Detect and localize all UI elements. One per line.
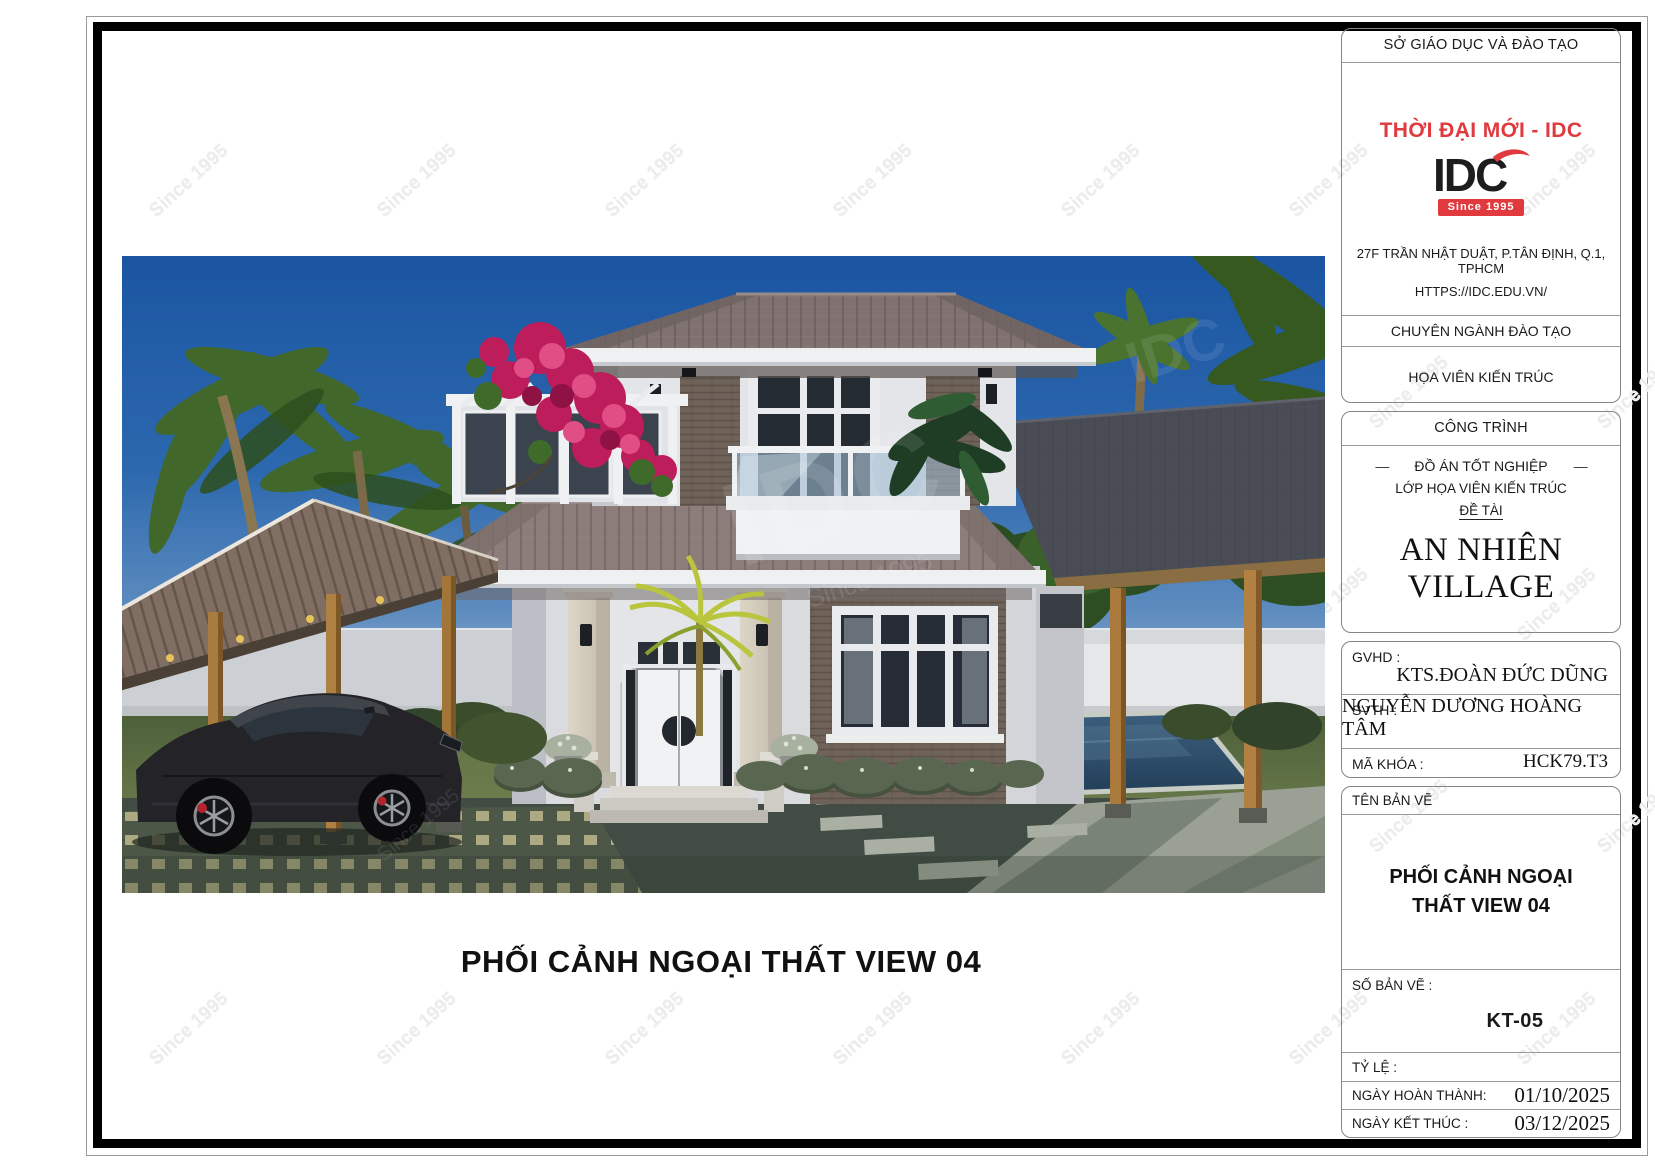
project-line3: ĐỀ TÀI	[1342, 503, 1620, 518]
ngay-hoan-thanh-row: NGÀY HOÀN THÀNH: 01/10/2025	[1342, 1082, 1620, 1110]
ngay-ket-thuc-row: NGÀY KẾT THÚC : 03/12/2025	[1342, 1110, 1620, 1137]
ngay-ket-thuc-value: 03/12/2025	[1514, 1111, 1610, 1136]
ty-le-label: TỶ LỆ :	[1352, 1060, 1397, 1075]
exterior-render: IDC Since 1995 IDC Since 1995	[122, 256, 1325, 893]
gvhd-row: GVHD : KTS.ĐOÀN ĐỨC DŨNG	[1342, 642, 1620, 695]
project-line2: LỚP HỌA VIÊN KIẾN TRÚC	[1342, 481, 1620, 496]
org-website: HTTPS://IDC.EDU.VN/	[1342, 284, 1620, 299]
project-line1-row: — ĐỒ ÁN TỐT NGHIỆP —	[1342, 458, 1620, 474]
ngay-hoan-thanh-value: 01/10/2025	[1514, 1083, 1610, 1108]
ngay-ket-thuc-label: NGÀY KẾT THÚC :	[1352, 1116, 1468, 1131]
title-block-people-section: GVHD : KTS.ĐOÀN ĐỨC DŨNG SVTH : NGUYỄN D…	[1341, 641, 1621, 778]
title-block: SỞ GIÁO DỤC VÀ ĐÀO TẠO THỜI ĐẠI MỚI - ID…	[1341, 28, 1621, 1138]
ngay-hoan-thanh-label: NGÀY HOÀN THÀNH:	[1352, 1088, 1487, 1103]
project-name: AN NHIÊN VILLAGE	[1342, 532, 1620, 606]
title-block-org-section: SỞ GIÁO DỤC VÀ ĐÀO TẠO THỜI ĐẠI MỚI - ID…	[1341, 28, 1621, 403]
title-block-sheet-section: TÊN BẢN VẼ PHỐI CẢNH NGOẠI THẤT VIEW 04 …	[1341, 786, 1621, 1138]
so-ban-ve-value: KT-05	[1376, 1010, 1621, 1033]
project-header: CÔNG TRÌNH	[1342, 412, 1620, 446]
drawing-title-line1: PHỐI CẢNH NGOẠI	[1389, 863, 1572, 892]
major-value: HỌA VIÊN KIẾN TRÚC	[1342, 369, 1620, 385]
dash-right: —	[1574, 458, 1587, 474]
major-header: CHUYÊN NGÀNH ĐÀO TẠO	[1342, 315, 1620, 347]
so-ban-ve-row: SỐ BẢN VẼ : KT-05	[1342, 970, 1620, 1054]
makhoa-value: HCK79.T3	[1523, 751, 1608, 773]
drawing-title-area: PHỐI CẢNH NGOẠI THẤT VIEW 04	[1342, 815, 1620, 970]
idc-tagline: THỜI ĐẠI MỚI - IDC	[1342, 119, 1620, 143]
org-address: 27F TRẦN NHẬT DUẬT, P.TÂN ĐỊNH, Q.1, TPH…	[1342, 246, 1620, 276]
gvhd-value: KTS.ĐOÀN ĐỨC DŨNG	[1396, 664, 1608, 687]
org-header: SỞ GIÁO DỤC VÀ ĐÀO TẠO	[1342, 29, 1620, 63]
svth-row: SVTH : NGUYỄN DƯƠNG HOÀNG TÂM	[1342, 695, 1620, 748]
title-block-project-section: CÔNG TRÌNH — ĐỒ ÁN TỐT NGHIỆP — LỚP HỌA …	[1341, 411, 1621, 633]
drawing-caption: PHỐI CẢNH NGOẠI THẤT VIEW 04	[101, 944, 1341, 980]
svth-value: NGUYỄN DƯƠNG HOÀNG TÂM	[1342, 695, 1608, 741]
makhoa-row: MÃ KHÓA : HCK79.T3	[1342, 749, 1620, 777]
drawing-sheet: Since 1995Since 1995Since 1995Since 1995…	[0, 0, 1655, 1170]
idc-logo-mark: IDC	[1431, 147, 1531, 197]
so-ban-ve-label: SỐ BẢN VẼ :	[1352, 978, 1432, 993]
idc-logo: IDC Since 1995	[1342, 147, 1620, 216]
ten-ban-ve-row: TÊN BẢN VẼ	[1342, 787, 1620, 815]
project-line1: ĐỒ ÁN TỐT NGHIỆP	[1414, 458, 1547, 474]
since-1995-badge: Since 1995	[1438, 199, 1525, 216]
dash-left: —	[1375, 458, 1388, 474]
exterior-render-illustration: IDC Since 1995 IDC Since 1995	[122, 256, 1325, 893]
ty-le-row: TỶ LỆ :	[1342, 1053, 1620, 1082]
makhoa-label: MÃ KHÓA :	[1352, 756, 1424, 772]
ten-ban-ve-label: TÊN BẢN VẼ	[1352, 793, 1432, 808]
gvhd-label: GVHD :	[1352, 649, 1400, 665]
drawing-title-line2: THẤT VIEW 04	[1412, 892, 1550, 921]
